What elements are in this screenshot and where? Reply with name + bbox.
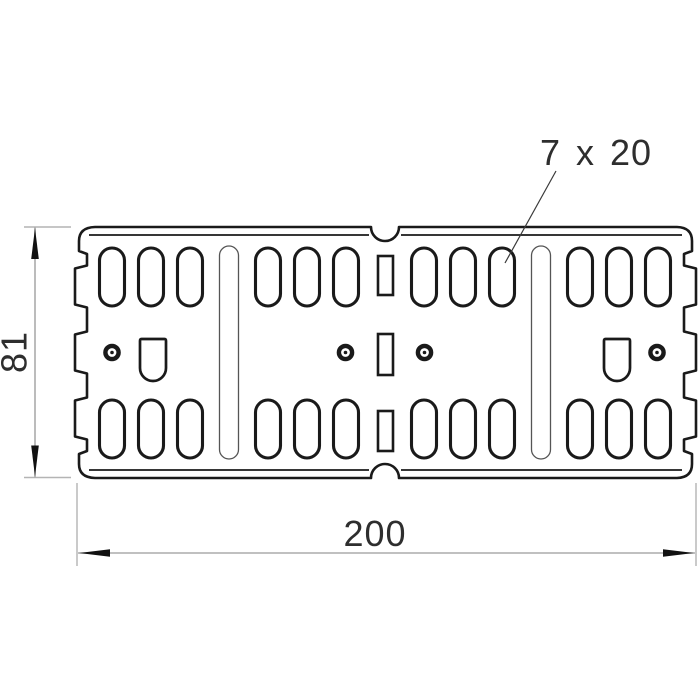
slot-7x20: [256, 400, 281, 458]
slot-7x20: [178, 248, 203, 306]
slot-7x20: [412, 400, 437, 458]
center-slot-middle: [378, 334, 393, 375]
height-dimension-label: 81: [0, 331, 35, 373]
center-slots: [378, 256, 393, 451]
dimension-arrow-up-icon: [31, 228, 39, 259]
slot-7x20: [490, 248, 515, 306]
slot-7x20: [412, 248, 437, 306]
slot-size-label: 7 x 20: [540, 132, 652, 173]
technical-drawing-canvas: 81 200 7 x 20: [0, 0, 700, 700]
long-slot: [532, 246, 551, 459]
technical-drawing: 81 200 7 x 20: [0, 0, 700, 700]
dimension-arrow-right-icon: [663, 549, 694, 557]
dimension-arrow-down-icon: [31, 446, 39, 477]
width-dimension-label: 200: [343, 513, 406, 554]
slot-7x20: [568, 248, 593, 306]
slot-7x20: [139, 400, 164, 458]
slot-7x20: [451, 248, 476, 306]
slot-7x20: [646, 400, 671, 458]
slot-7x20: [451, 400, 476, 458]
slot-7x20: [100, 248, 125, 306]
slot-7x20: [295, 400, 320, 458]
d-hole-right: [604, 339, 630, 381]
dimension-width: 200: [77, 483, 696, 566]
slot-7x20: [334, 400, 359, 458]
slot-7x20: [607, 400, 632, 458]
long-slot: [220, 246, 239, 459]
slot-7x20: [490, 400, 515, 458]
d-hole-left: [140, 339, 166, 381]
dimension-height: 81: [0, 227, 71, 478]
center-slot-top: [378, 256, 393, 295]
slot-7x20: [568, 400, 593, 458]
rivet-dot: [105, 346, 118, 359]
center-slot-bottom: [378, 411, 393, 451]
rivet-dot: [650, 346, 663, 359]
slot-7x20: [646, 248, 671, 306]
slot-7x20: [256, 248, 281, 306]
slot-7x20: [607, 248, 632, 306]
dimension-arrow-left-icon: [79, 549, 110, 557]
slot-7x20: [100, 400, 125, 458]
slot-7x20: [334, 248, 359, 306]
rivet-dot: [418, 346, 431, 359]
slot-7x20: [139, 248, 164, 306]
slot-7x20: [178, 400, 203, 458]
rivet-dot: [339, 346, 352, 359]
slot-7x20: [295, 248, 320, 306]
